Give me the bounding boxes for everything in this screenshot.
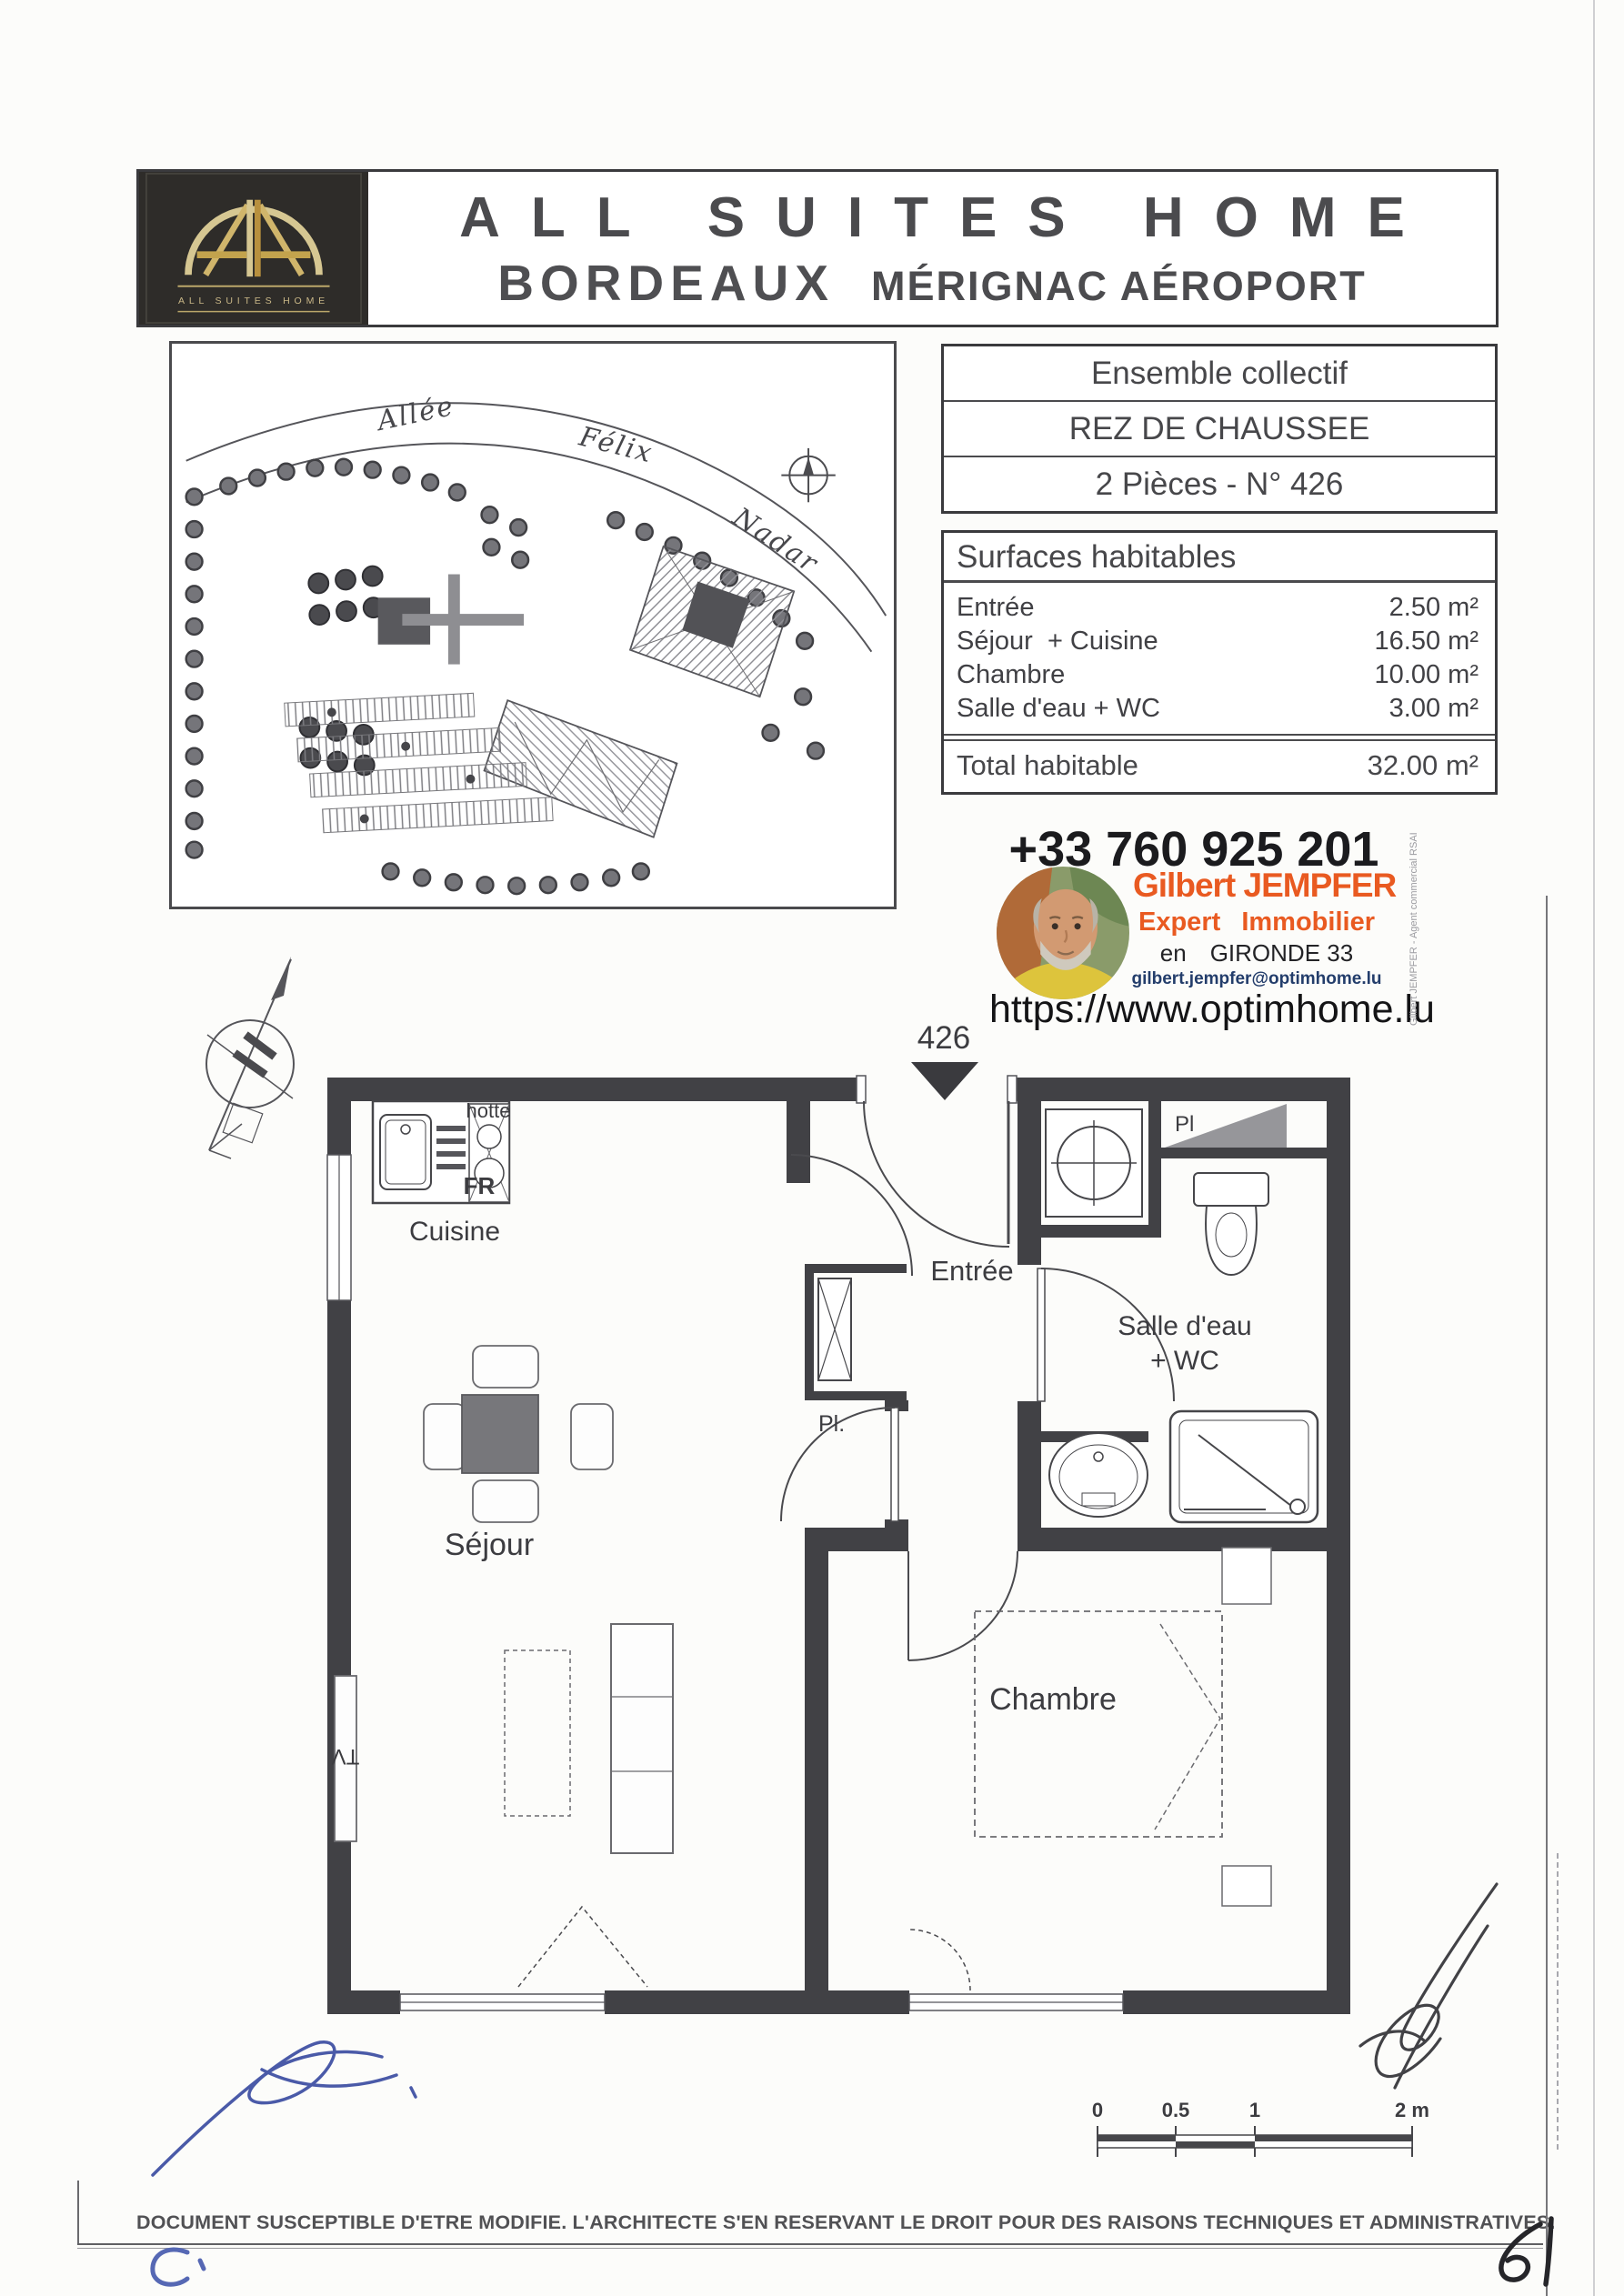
brand-location: MÉRIGNAC AÉROPORT: [871, 263, 1367, 310]
region-name: GIRONDE 33: [1210, 939, 1354, 968]
room-label-entree: Entrée: [930, 1255, 1013, 1287]
room-label-sejour: Séjour: [445, 1528, 534, 1562]
agent-photo-icon: [997, 867, 1129, 999]
surfaces-title: Surfaces habitables: [944, 533, 1495, 583]
table-row: Chambre 10.00 m²: [957, 658, 1479, 692]
page-edge-line: [1546, 896, 1548, 2296]
room-label-tv: TV: [332, 1744, 360, 1769]
unit-info-number: 2 Pièces - N° 426: [944, 456, 1495, 511]
site-plan: Allée Félix Nadar: [169, 341, 897, 909]
street-word-3: Nadar: [727, 501, 825, 580]
unit-info-type: Ensemble collectif: [944, 346, 1495, 400]
surfaces-rows: Entrée 2.50 m² Séjour + Cuisine 16.50 m²…: [944, 583, 1495, 734]
surface-value: 2.50 m²: [1389, 591, 1479, 625]
room-label-placard: Pl.: [818, 1411, 845, 1437]
surface-label: Chambre: [957, 658, 1065, 692]
scale-bar: 0 0.5 1 2 m: [1078, 2099, 1441, 2171]
brand-city: BORDEAUX: [497, 254, 835, 312]
surface-label: Séjour + Cuisine: [957, 625, 1158, 658]
brand-logo: ALL SUITES HOME: [139, 172, 368, 325]
site-compass-icon: [781, 448, 835, 502]
agent-watermark: Gilbert JEMPFER - Agent commercial RSAI: [1408, 807, 1419, 1026]
contact-website: https://www.optimhome.lu: [989, 988, 1417, 1032]
brand-subtitle: BORDEAUX MÉRIGNAC AÉROPORT: [497, 254, 1367, 312]
table-row: Séjour + Cuisine 16.50 m²: [957, 625, 1479, 658]
role-right: Immobilier: [1241, 907, 1375, 937]
contact-region: en GIRONDE 33: [1138, 939, 1375, 968]
scale-tick-0: 0: [1092, 2099, 1103, 2121]
street-word-2: Félix: [576, 420, 657, 469]
site-plan-drawing: Allée Félix Nadar: [172, 344, 894, 907]
document-page: { "header": { "logo": { "caption": "ALL …: [0, 0, 1624, 2296]
role-left: Expert: [1138, 907, 1220, 937]
micro-text-artifact: [1557, 1853, 1559, 2150]
scale-tick-1: 1: [1249, 2099, 1260, 2121]
table-separator: [944, 734, 1495, 741]
surface-value: 3.00 m²: [1389, 692, 1479, 726]
all-suites-home-logo-icon: ALL SUITES HOME: [139, 172, 368, 325]
footer-corner-line: [77, 2181, 79, 2245]
room-label-fridge: FR: [464, 1172, 496, 1199]
total-value: 32.00 m²: [1368, 749, 1479, 782]
room-label-hood: hotte: [466, 1099, 511, 1122]
initial-blue: [153, 2250, 204, 2284]
floor-plan-drawing: hotte FR Cuisine Pl. Entrée Pl Salle d'e…: [309, 1046, 1382, 2073]
footer-disclaimer: DOCUMENT SUSCEPTIBLE D'ETRE MODIFIE. L'A…: [136, 2211, 1555, 2234]
logo-caption: ALL SUITES HOME: [178, 296, 329, 306]
surface-value: 16.50 m²: [1375, 625, 1479, 658]
table-row: Entrée 2.50 m²: [957, 591, 1479, 625]
avatar: [997, 867, 1129, 999]
room-label-chambre: Chambre: [989, 1682, 1117, 1717]
header-titles: ALL SUITES HOME BORDEAUX MÉRIGNAC AÉROPO…: [368, 172, 1496, 325]
contact-email: gilbert.jempfer@optimhome.lu: [1111, 969, 1402, 989]
table-row: Salle d'eau + WC 3.00 m²: [957, 692, 1479, 726]
page-edge-line-2: [1593, 0, 1595, 2296]
room-label-cuisine: Cuisine: [409, 1217, 500, 1247]
surface-label: Salle d'eau + WC: [957, 692, 1160, 726]
surfaces-total-row: Total habitable 32.00 m²: [944, 741, 1495, 792]
surface-label: Entrée: [957, 591, 1034, 625]
room-label-wc: + WC: [1150, 1346, 1219, 1376]
contact-role: Expert Immobilier: [1138, 907, 1375, 937]
street-name: Allée Félix Nadar: [372, 390, 824, 580]
footer-rule: [77, 2243, 1543, 2249]
street-word-1: Allée: [372, 390, 457, 438]
hall-closet: [818, 1278, 851, 1380]
room-label-placard-small: Pl: [1175, 1112, 1194, 1137]
buildings: [378, 546, 795, 837]
bedroom-furniture: [975, 1548, 1271, 1906]
scale-tick-2m: 2 m: [1395, 2099, 1429, 2121]
brand-title: ALL SUITES HOME: [459, 185, 1436, 250]
scale-tick-05: 0.5: [1162, 2099, 1190, 2121]
room-label-bath: Salle d'eau: [1118, 1311, 1252, 1341]
contact-name: Gilbert JEMPFER: [1133, 867, 1396, 905]
total-label: Total habitable: [957, 749, 1138, 782]
surface-value: 10.00 m²: [1375, 658, 1479, 692]
unit-info-floor: REZ DE CHAUSSEE: [944, 400, 1495, 456]
north-arrow-icon: [155, 946, 336, 1164]
header-banner: ALL SUITES HOME ALL SUITES HOME BORDEAUX…: [136, 169, 1499, 327]
surfaces-table: Surfaces habitables Entrée 2.50 m² Séjou…: [941, 530, 1498, 795]
entrance-marker: [911, 1062, 978, 1100]
unit-info-box: Ensemble collectif REZ DE CHAUSSEE 2 Piè…: [941, 344, 1498, 514]
living-room-furniture: [335, 1346, 673, 1853]
region-prefix: en: [1160, 939, 1187, 968]
